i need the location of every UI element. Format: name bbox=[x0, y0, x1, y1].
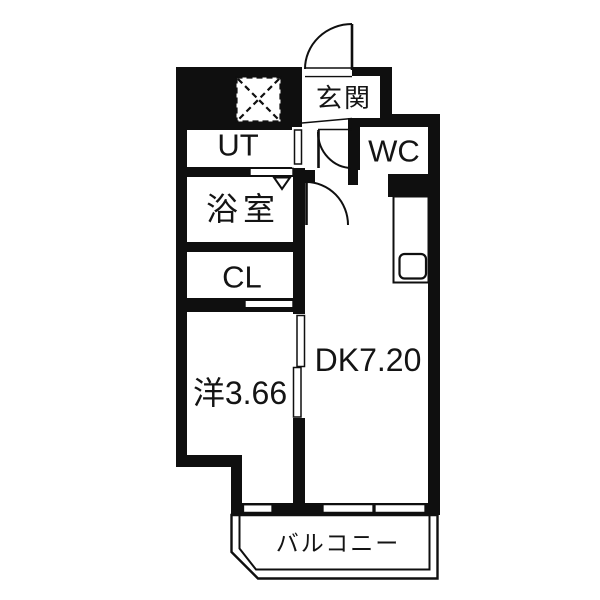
washer-space-symbol bbox=[237, 78, 281, 122]
cl-label: CL bbox=[222, 260, 262, 295]
wc-label: WC bbox=[368, 134, 420, 169]
dk-window-right bbox=[375, 505, 425, 513]
western-door-leaf-lower bbox=[294, 368, 302, 418]
dk-label: DK7.20 bbox=[315, 342, 422, 378]
balcony-label: バルコニー bbox=[276, 530, 401, 556]
wc-door-opening bbox=[358, 170, 388, 185]
bath-door-inset bbox=[250, 168, 293, 175]
wall-left-outer bbox=[176, 67, 187, 467]
wall-bath-cl bbox=[176, 242, 304, 252]
dk-window-left bbox=[323, 505, 373, 513]
ut-door-leaf bbox=[295, 130, 302, 164]
wall-jog-vertical bbox=[231, 467, 242, 508]
floor-plan-drawing: 玄関 WC UT 浴室 CL 洋3.66 DK7.20 バルコニー bbox=[0, 0, 600, 600]
western-door-leaf-upper bbox=[297, 316, 305, 367]
wall-right-outer bbox=[428, 114, 440, 512]
wall-jog-horizontal bbox=[176, 455, 242, 467]
kitchen-sink-icon bbox=[400, 254, 427, 279]
genkan-label: 玄関 bbox=[316, 83, 372, 113]
bath-label: 浴室 bbox=[206, 191, 280, 227]
ut-label: UT bbox=[217, 128, 258, 163]
western-room-label: 洋3.66 bbox=[193, 375, 287, 411]
floor-plan-canvas: 玄関 WC UT 浴室 CL 洋3.66 DK7.20 バルコニー bbox=[0, 0, 600, 600]
western-window bbox=[244, 505, 273, 513]
cl-door-inset bbox=[245, 300, 293, 307]
wall-genkan-right bbox=[380, 67, 392, 118]
